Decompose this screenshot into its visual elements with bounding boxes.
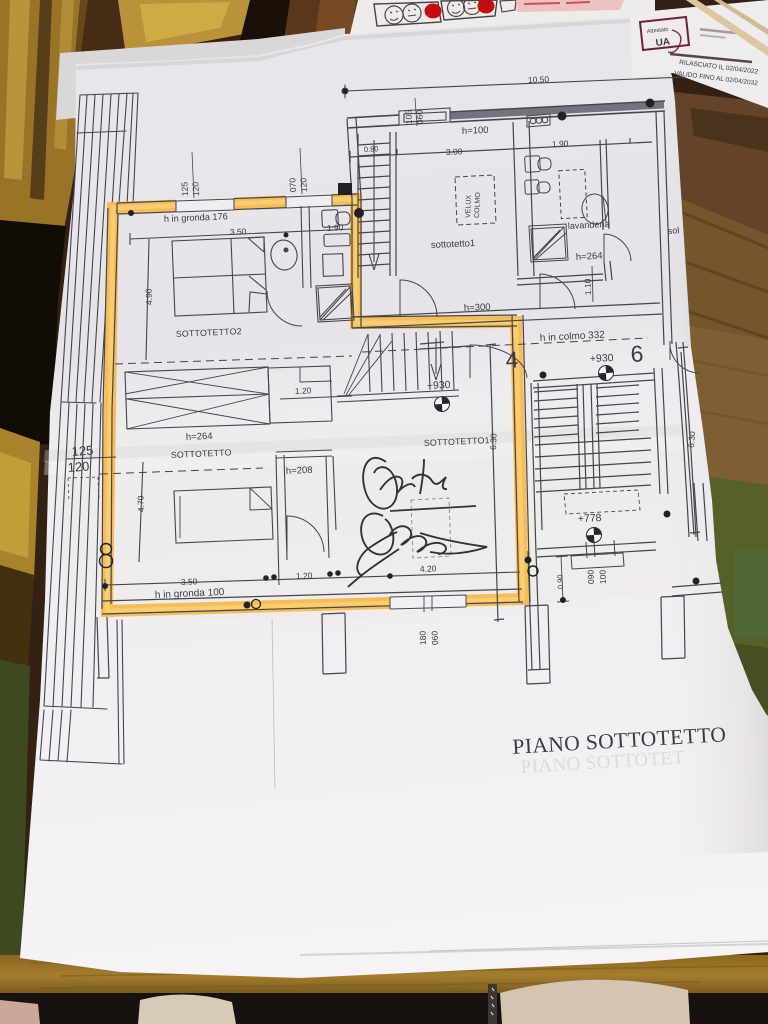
svg-text:COLMO: COLMO xyxy=(474,192,482,218)
svg-text:3.50: 3.50 xyxy=(181,576,198,587)
svg-text:070: 070 xyxy=(287,177,298,192)
svg-text:120: 120 xyxy=(67,459,90,475)
svg-text:1.10: 1.10 xyxy=(582,278,593,295)
svg-text:1.20: 1.20 xyxy=(296,570,313,581)
svg-text:6: 6 xyxy=(630,340,644,367)
svg-text:h=264: h=264 xyxy=(186,431,213,443)
svg-text:1.90: 1.90 xyxy=(327,222,344,233)
svg-text:180: 180 xyxy=(418,630,428,645)
svg-text:h=300: h=300 xyxy=(464,302,491,314)
svg-text:h=264: h=264 xyxy=(576,251,603,263)
svg-text:UA: UA xyxy=(655,37,671,49)
svg-text:120: 120 xyxy=(298,177,309,192)
svg-text:1.20: 1.20 xyxy=(295,385,312,396)
svg-text:125: 125 xyxy=(71,443,94,459)
svg-text:sottotetto1: sottotetto1 xyxy=(431,238,476,251)
svg-text:3.00: 3.00 xyxy=(446,146,463,157)
svg-text:125: 125 xyxy=(179,181,190,196)
svg-text:060: 060 xyxy=(430,630,440,645)
svg-text:+778: +778 xyxy=(578,512,602,525)
svg-text:0.90: 0.90 xyxy=(555,574,565,589)
svg-text:+930: +930 xyxy=(590,352,614,365)
svg-text:120: 120 xyxy=(190,181,201,196)
svg-text:0.80: 0.80 xyxy=(364,144,379,154)
svg-text:h=208: h=208 xyxy=(286,465,313,477)
svg-text:10.50: 10.50 xyxy=(528,74,550,85)
svg-text:3.50: 3.50 xyxy=(230,226,247,237)
svg-text:105: 105 xyxy=(403,109,414,124)
svg-text:090: 090 xyxy=(586,569,596,584)
svg-text:1.90: 1.90 xyxy=(552,138,569,149)
svg-text:4.90: 4.90 xyxy=(143,288,154,305)
svg-text:h=100: h=100 xyxy=(462,125,489,137)
svg-text:100: 100 xyxy=(598,569,608,584)
svg-text:sol: sol xyxy=(667,225,679,236)
svg-text:4: 4 xyxy=(505,346,519,373)
svg-text:VELUX: VELUX xyxy=(465,195,473,219)
svg-text:4.70: 4.70 xyxy=(135,495,146,512)
svg-text:4.20: 4.20 xyxy=(420,563,437,574)
svg-text:6.30: 6.30 xyxy=(686,431,697,448)
